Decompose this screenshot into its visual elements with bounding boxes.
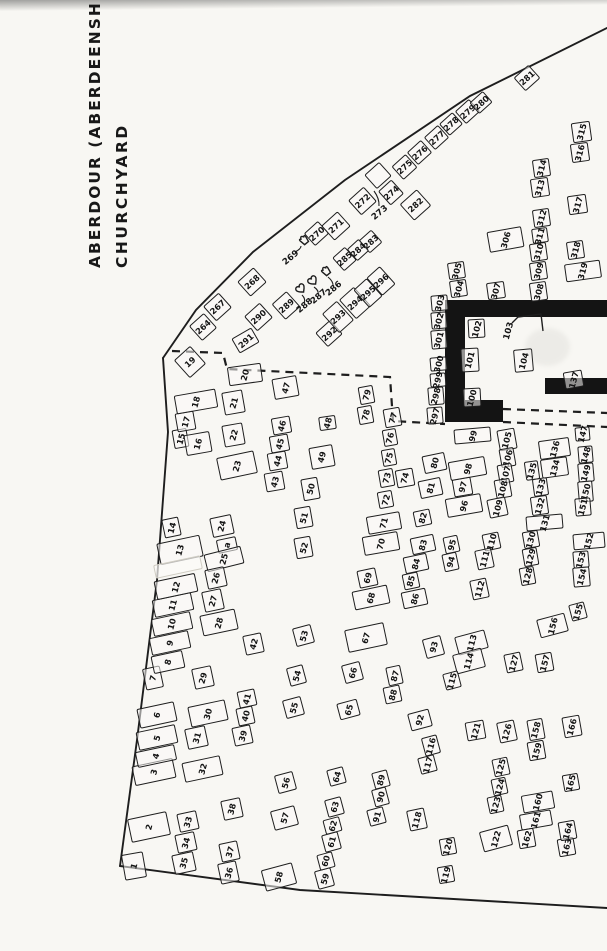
grave-plot-number: 302 xyxy=(432,310,446,329)
grave-plot-number: 100 xyxy=(465,387,479,406)
grave-plot-number: 4 xyxy=(150,752,161,760)
grave-plot-129: 129 xyxy=(521,547,539,567)
grave-plot-119: 119 xyxy=(437,864,456,884)
grave-plot-number: 75 xyxy=(383,450,396,464)
grave-plot-95: 95 xyxy=(442,534,460,554)
grave-plot-303: 303 xyxy=(430,294,448,311)
grave-plot-number: 267 xyxy=(207,297,227,316)
grave-plot-number: 55 xyxy=(287,700,300,714)
grave-plot-number: 10 xyxy=(166,617,179,631)
grave-plot-number: 272 xyxy=(352,191,372,210)
grave-plot-137: 137 xyxy=(562,369,584,389)
grave-plot-75: 75 xyxy=(381,447,398,466)
grave-plot-number: 88 xyxy=(386,687,399,701)
grave-plot-77: 77 xyxy=(382,406,402,428)
grave-plot-132: 132 xyxy=(529,494,548,515)
grave-plot-number: 52 xyxy=(297,540,310,554)
grave-plot-318: 318 xyxy=(565,240,584,260)
grave-plot-number: 44 xyxy=(271,454,284,468)
grave-plot-number: 306 xyxy=(498,229,512,248)
grave-plot-number: 289 xyxy=(276,295,296,314)
grave-plot-number: 19 xyxy=(182,354,197,369)
grave-plot-number: 158 xyxy=(529,719,543,738)
grave-plot-number: 102 xyxy=(469,318,483,337)
grave-plot-308: 308 xyxy=(528,280,547,301)
grave-plot-number: 53 xyxy=(297,628,310,642)
grave-plot-301: 301 xyxy=(430,329,448,349)
grave-plot-number: 51 xyxy=(297,510,310,524)
grave-plot-number: 121 xyxy=(468,720,482,739)
grave-plot-number: 282 xyxy=(405,195,425,214)
footpath-dashed-line xyxy=(503,422,607,427)
grave-plot-99: 99 xyxy=(453,426,491,444)
grave-plot-number: 271 xyxy=(326,216,346,235)
grave-plot-number: 31 xyxy=(190,730,203,744)
grave-plot-number: 109 xyxy=(490,497,504,516)
grave-plot-34: 34 xyxy=(174,831,198,854)
grave-plot-number: 20 xyxy=(239,367,252,381)
grave-plot-27: 27 xyxy=(201,588,225,613)
grave-plot-127: 127 xyxy=(503,651,524,673)
grave-plot-number: 98 xyxy=(461,461,474,475)
grave-plot-number: 76 xyxy=(384,430,397,444)
grave-plot-number: 11 xyxy=(167,598,180,612)
grave-plot-number: 112 xyxy=(472,579,486,598)
grave-plot-number: 133 xyxy=(533,477,547,496)
church-building-wall xyxy=(445,300,607,317)
grave-plot-number: 21 xyxy=(227,395,240,409)
grave-plot-number: 305 xyxy=(449,260,463,279)
heart-icon xyxy=(307,275,319,287)
grave-plot-number: 68 xyxy=(365,590,378,604)
grave-plot-112: 112 xyxy=(469,577,490,600)
grave-plot-16: 16 xyxy=(183,430,212,455)
grave-plot-48: 48 xyxy=(318,415,337,431)
grave-plot-117: 117 xyxy=(417,754,438,775)
grave-plot-number: 129 xyxy=(523,547,537,566)
grave-plot-number: 32 xyxy=(196,762,209,776)
grave-plot-number: 116 xyxy=(424,735,438,754)
grave-plot-number: 1 xyxy=(128,862,139,870)
grave-plot-72: 72 xyxy=(376,489,394,508)
grave-plot-101: 101 xyxy=(460,348,479,373)
grave-plot-165: 165 xyxy=(562,772,581,792)
churchyard-map: 123456789101112131415161718192021222324a… xyxy=(0,0,607,951)
grave-plot-73: 73 xyxy=(377,468,395,488)
grave-plot-number: 30 xyxy=(202,706,215,720)
grave-plot-82: 82 xyxy=(412,508,432,527)
grave-plot-number: 118 xyxy=(410,809,424,828)
grave-plot-1: 1 xyxy=(121,851,147,880)
grave-plot-number: 96 xyxy=(458,498,471,512)
grave-plot-number: 114 xyxy=(462,651,476,670)
grave-plot-number: 49 xyxy=(316,450,329,464)
grave-plot-number: 123 xyxy=(488,794,502,813)
grave-plot-314: 314 xyxy=(531,158,550,178)
grave-plot-66: 66 xyxy=(340,660,363,683)
grave-plot-number: 74 xyxy=(399,471,412,485)
grave-plot-31: 31 xyxy=(184,725,209,750)
grave-plot-number: 56 xyxy=(279,775,292,789)
grave-plot-43: 43 xyxy=(263,470,285,492)
grave-plot-number: 57 xyxy=(278,811,291,825)
grave-plot-311: 311 xyxy=(531,226,549,243)
grave-plot-44: 44 xyxy=(266,450,288,471)
grave-plot-number: 124 xyxy=(492,776,506,795)
grave-plot-number: 149 xyxy=(579,462,593,481)
grave-plot-number: 81 xyxy=(424,481,437,495)
grave-plot-166: 166 xyxy=(561,714,582,738)
grave-plot-number: 313 xyxy=(533,177,547,196)
grave-plot-number: 309 xyxy=(531,261,545,280)
grave-plot-number: 6 xyxy=(151,711,162,719)
grave-plot-109: 109 xyxy=(486,496,509,519)
grave-plot-317: 317 xyxy=(566,193,587,214)
grave-plot-130: 130 xyxy=(522,529,541,549)
grave-plot-number: 8 xyxy=(162,658,173,666)
grave-plot-number: 117 xyxy=(420,754,434,773)
grave-plot-38: 38 xyxy=(220,797,244,821)
grave-plot-313: 313 xyxy=(530,176,550,197)
grave-plot-number: 85 xyxy=(405,574,418,588)
grave-plot-309: 309 xyxy=(528,261,547,281)
grave-plot-number: 40 xyxy=(239,709,252,723)
grave-plot-number: 43 xyxy=(268,474,281,488)
grave-plot-number: 303 xyxy=(432,293,446,312)
grave-plot-135: 135 xyxy=(524,460,541,481)
grave-plot-22: 22 xyxy=(221,422,246,447)
grave-plot-148: 148 xyxy=(577,445,593,463)
grave-plot-52: 52 xyxy=(293,535,313,559)
grave-plot-74: 74 xyxy=(395,468,416,489)
map-linework xyxy=(0,0,607,951)
grave-plot-number: 58 xyxy=(273,870,286,884)
grave-plot-147: 147 xyxy=(574,426,590,441)
grave-plot-number: 301 xyxy=(432,329,446,348)
grave-plot-304: 304 xyxy=(448,278,467,297)
grave-plot-number: 166 xyxy=(565,716,579,735)
grave-plot-number: 317 xyxy=(570,194,584,213)
grave-plot-number: 66 xyxy=(346,665,359,679)
grave-plot-21: 21 xyxy=(221,389,246,415)
grave-plot-14: 14 xyxy=(161,516,182,538)
grave-plot-297: 297 xyxy=(426,406,443,424)
grave-plot-20: 20 xyxy=(227,362,263,386)
grave-plot-41: 41 xyxy=(236,688,257,708)
grave-plot-number: 136 xyxy=(547,438,561,457)
grave-plot-number: 27 xyxy=(207,593,220,607)
grave-plot-number: 41 xyxy=(241,691,254,705)
grave-plot-number: 16 xyxy=(192,436,205,450)
grave-plot-number: 97 xyxy=(456,480,469,494)
grave-plot-312: 312 xyxy=(531,208,550,228)
grave-plot-number: 135 xyxy=(525,460,539,479)
grave-plot-91: 91 xyxy=(366,806,387,827)
grave-plot-number: 315 xyxy=(574,122,588,141)
grave-plot-45: 45 xyxy=(268,433,290,453)
grave-plot-number: 91 xyxy=(370,809,383,823)
grave-plot-37: 37 xyxy=(218,840,241,863)
grave-plot-number: 84 xyxy=(410,556,423,570)
grave-plot-number: 164 xyxy=(560,820,574,839)
grave-plot-number: 165 xyxy=(564,772,578,791)
grave-plot-number: 71 xyxy=(378,516,391,530)
grave-plot-69: 69 xyxy=(356,567,378,589)
grave-plot-number: 310 xyxy=(531,242,545,261)
grave-plot-number: 130 xyxy=(524,529,538,548)
grave-plot-number: 298 xyxy=(429,386,443,405)
grave-plot-number: 105 xyxy=(500,429,514,448)
grave-plot-number: 99 xyxy=(466,428,479,442)
grave-plot-number: 86 xyxy=(408,591,421,605)
grave-plot-76: 76 xyxy=(382,427,399,446)
grave-plot-157: 157 xyxy=(534,651,554,673)
boundary-line xyxy=(120,866,607,908)
grave-plot-131: 131 xyxy=(525,513,563,531)
pencil-smudge xyxy=(525,328,570,366)
grave-plot-number: 46 xyxy=(275,418,288,432)
grave-plot-number: 65 xyxy=(342,702,355,716)
grave-plot-number: 154 xyxy=(574,567,588,586)
heart-icon xyxy=(295,283,307,295)
grave-plot-102: 102 xyxy=(467,318,485,338)
grave-plot-number: 93 xyxy=(427,640,440,654)
grave-plot-number: 37 xyxy=(223,844,236,858)
grave-plot-50: 50 xyxy=(300,477,321,502)
grave-plot-55: 55 xyxy=(281,695,304,718)
grave-plot-number: 89 xyxy=(375,772,388,786)
grave-plot-88: 88 xyxy=(382,684,402,704)
grave-plot-number: 297 xyxy=(428,405,442,424)
grave-plot-number: 119 xyxy=(439,864,453,883)
grave-plot-128: 128 xyxy=(518,566,536,586)
grave-plot-149: 149 xyxy=(577,462,595,482)
grave-plot-56: 56 xyxy=(273,770,296,793)
grave-plot-number: 120 xyxy=(441,836,455,855)
grave-plot-number: 156 xyxy=(545,615,559,634)
grave-plot-number: 17 xyxy=(179,414,192,428)
grave-plot-number: 155 xyxy=(571,601,585,620)
grave-plot-number: 69 xyxy=(361,571,374,585)
grave-plot-number: 3 xyxy=(148,768,159,776)
grave-plot-number: 111 xyxy=(477,549,491,568)
grave-plot-number: 314 xyxy=(534,158,548,177)
grave-plot-number: 152 xyxy=(582,531,596,550)
tulip-icon xyxy=(320,265,331,276)
grave-plot-151: 151 xyxy=(574,497,592,516)
grave-plot-number: 108 xyxy=(496,478,510,497)
grave-plot-number: 9 xyxy=(164,639,175,647)
grave-plot-number: 160 xyxy=(531,792,545,811)
grave-plot-number: 87 xyxy=(388,668,401,682)
grave-plot-298: 298 xyxy=(427,386,445,405)
grave-plot-number: 78 xyxy=(359,408,372,422)
grave-plot-125: 125 xyxy=(491,757,510,778)
grave-plot-number: 61 xyxy=(325,835,338,849)
grave-plot-299: 299 xyxy=(429,372,446,387)
grave-plot-number: 127 xyxy=(506,652,520,671)
grave-plot-136: 136 xyxy=(537,436,570,459)
grave-plot-number: 29 xyxy=(197,670,210,684)
grave-plot-number: 64 xyxy=(330,769,343,783)
grave-plot-number: 14 xyxy=(165,520,178,534)
grave-plot-26: 26 xyxy=(204,566,228,590)
grave-plot-number: 137 xyxy=(566,369,580,388)
grave-plot-number: 148 xyxy=(578,444,592,463)
grave-plot-316: 316 xyxy=(570,141,590,162)
grave-plot-number: 161 xyxy=(529,810,543,829)
grave-plot-number: 42 xyxy=(247,637,260,651)
grave-plot-87: 87 xyxy=(385,664,404,686)
grave-plot-78: 78 xyxy=(356,405,374,425)
grave-plot-159: 159 xyxy=(526,739,546,761)
grave-plot-number: 36 xyxy=(222,865,235,879)
grave-plot-number: 2 xyxy=(143,823,154,831)
grave-plot-number: 264 xyxy=(193,317,213,336)
grave-plot-number: 159 xyxy=(529,740,543,759)
grave-plot-number: 34 xyxy=(180,835,193,849)
grave-plot-number: 79 xyxy=(360,388,373,402)
grave-plot-49: 49 xyxy=(308,444,335,470)
grave-plot-number: 24 xyxy=(216,519,229,533)
grave-plot-94: 94 xyxy=(441,552,459,573)
grave-plot-100: 100 xyxy=(463,387,482,407)
grave-plot-number: 296 xyxy=(371,271,391,290)
grave-plot-number: 290 xyxy=(248,307,268,326)
grave-plot-number: 316 xyxy=(573,142,587,161)
grave-plot-number: 5 xyxy=(151,733,162,741)
grave-plot-number: 134 xyxy=(547,457,561,476)
grave-plot-number: 60 xyxy=(320,854,333,868)
grave-plot-number: 319 xyxy=(576,261,590,280)
grave-plot-number: 162 xyxy=(519,828,533,847)
grave-plot-number: 308 xyxy=(531,281,545,300)
grave-plot-number: 72 xyxy=(379,492,392,506)
grave-plot-154: 154 xyxy=(572,566,591,587)
scanned-churchyard-plan: ABERDOUR (ABERDEENSHIRE) CHURCHYARD 1234… xyxy=(0,0,607,951)
grave-plot-number: 307 xyxy=(489,280,503,299)
grave-plot-number: 318 xyxy=(568,240,582,259)
grave-plot-number: 25 xyxy=(218,552,231,566)
grave-plot-number: 131 xyxy=(537,512,551,531)
grave-plot-number: 28 xyxy=(213,615,226,629)
grave-plot-number: 94 xyxy=(444,555,457,569)
grave-plot-number: 157 xyxy=(537,652,551,671)
grave-plot-number: 50 xyxy=(304,482,317,496)
grave-plot-29: 29 xyxy=(191,665,215,690)
grave-plot-number: 101 xyxy=(463,350,477,369)
grave-plot-number: 128 xyxy=(520,566,534,585)
grave-plot-302: 302 xyxy=(430,311,447,329)
grave-plot-164: 164 xyxy=(557,819,577,841)
grave-plot-number: 126 xyxy=(500,721,514,740)
footpath-dashed-line xyxy=(503,409,607,413)
grave-plot-number: 82 xyxy=(416,511,429,525)
grave-plot-number: 70 xyxy=(375,536,388,550)
grave-plot-123: 123 xyxy=(486,794,504,814)
grave-plot-53: 53 xyxy=(291,623,314,646)
grave-plot-51: 51 xyxy=(293,505,313,529)
grave-plot-number: 268 xyxy=(242,272,262,291)
grave-plot-307: 307 xyxy=(486,280,506,299)
grave-plot-162: 162 xyxy=(516,827,536,849)
grave-plot-number: 54 xyxy=(290,668,303,682)
grave-plot-number: 122 xyxy=(489,828,503,847)
grave-plot-number: 33 xyxy=(182,814,195,828)
grave-plot-number: 47 xyxy=(279,380,292,394)
grave-plot-79: 79 xyxy=(357,385,375,405)
grave-plot-number: 95 xyxy=(445,537,458,551)
grave-plot-36: 36 xyxy=(217,860,240,884)
grave-plot-number: 312 xyxy=(534,208,548,227)
grave-plot-33: 33 xyxy=(176,810,200,833)
grave-plot-number: 90 xyxy=(374,790,387,804)
grave-plot-46: 46 xyxy=(270,415,292,435)
grave-plot-120: 120 xyxy=(439,836,458,856)
grave-plot-number: 80 xyxy=(428,456,441,470)
grave-plot-310: 310 xyxy=(528,242,547,262)
grave-plot-152: 152 xyxy=(572,532,605,551)
grave-plot-number: 62 xyxy=(326,818,339,832)
grave-plot-47: 47 xyxy=(271,374,299,399)
grave-plot-number: 92 xyxy=(414,713,427,727)
grave-plot-number: 23 xyxy=(231,458,244,472)
grave-plot-number: 59 xyxy=(318,871,331,885)
grave-plot-number: 151 xyxy=(576,497,590,516)
grave-plot-number: 18 xyxy=(190,394,203,408)
grave-plot-number: 22 xyxy=(227,428,240,442)
grave-plot-number: 13 xyxy=(174,543,187,557)
grave-plot-number: 26 xyxy=(210,571,223,585)
grave-plot-number: 83 xyxy=(417,537,430,551)
grave-plot-number: 125 xyxy=(494,757,508,776)
footpath-dashed-line xyxy=(172,351,445,424)
grave-plot-39: 39 xyxy=(231,724,254,747)
grave-plot-number: 63 xyxy=(328,800,341,814)
grave-plot-number: 39 xyxy=(236,728,249,742)
grave-plot-85: 85 xyxy=(402,572,421,591)
grave-plot-number: 45 xyxy=(273,436,286,450)
grave-plot-121: 121 xyxy=(464,719,486,741)
grave-plot-315: 315 xyxy=(570,121,592,143)
grave-plot-number: 304 xyxy=(451,278,465,297)
grave-plot-42: 42 xyxy=(242,632,265,656)
grave-plot-number: 12 xyxy=(170,579,183,593)
grave-plot-number: 115 xyxy=(445,670,459,689)
grave-plot-number: 67 xyxy=(360,630,373,644)
grave-plot-number: 48 xyxy=(321,416,334,430)
grave-plot-124: 124 xyxy=(490,776,508,796)
grave-plot-number: 73 xyxy=(380,471,393,485)
grave-plot-number: 38 xyxy=(226,802,239,816)
grave-plot-64: 64 xyxy=(326,766,347,787)
grave-plot-number: 7 xyxy=(147,674,158,682)
grave-plot-number: 77 xyxy=(386,410,399,424)
grave-plot-number: 35 xyxy=(178,856,191,870)
grave-plot-300: 300 xyxy=(429,356,447,371)
grave-plot-number: 311 xyxy=(533,225,547,244)
grave-plot-305: 305 xyxy=(446,260,465,279)
grave-plot-111: 111 xyxy=(474,547,495,570)
grave-plot-40: 40 xyxy=(235,705,255,726)
grave-plot-number: 132 xyxy=(532,495,546,514)
grave-plot-number: 293 xyxy=(328,307,348,326)
